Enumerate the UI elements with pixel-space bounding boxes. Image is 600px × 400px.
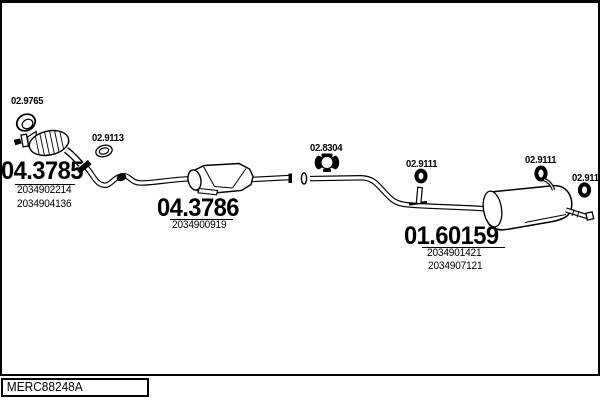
exhaust-system-diagram: 02.9765 02.9113 02.8304 02.9111 02.9111 …: [0, 0, 600, 400]
sleeve-joint: [301, 173, 306, 184]
frame-border-left: [0, 0, 2, 376]
label-hanger-1: 02.9111: [406, 159, 437, 169]
hanger-ring-icon-2: [536, 168, 545, 180]
rear-pipe: [310, 178, 484, 209]
tailpipe-drawing: [566, 210, 594, 221]
oe-number: 2034900919: [172, 220, 226, 231]
label-hanger-3: 02.9111: [572, 173, 600, 183]
hanger-ring-icon-1: [417, 171, 426, 182]
part-number-centre-catalyst: 04.3786: [157, 197, 239, 219]
label-hanger-2: 02.9111: [525, 155, 556, 165]
centre-outlet-pipe: [252, 174, 292, 184]
frame-border-top: [0, 0, 600, 3]
part-number-front-catalyst: 04.3785: [1, 160, 83, 182]
oe-number: 2034902214: [17, 185, 71, 196]
centre-catalyst-drawing: [186, 164, 253, 195]
pipe-end-flare: [289, 174, 293, 184]
label-seal-ring: 02.9113: [92, 133, 124, 143]
diagram-artwork: [0, 0, 600, 400]
clamp-icon: [315, 154, 340, 173]
hanger-ring-icon-3: [580, 184, 589, 195]
inlet-stub: [14, 138, 22, 145]
diagram-code-box: MERC88248A: [1, 378, 149, 398]
label-clamp: 02.8304: [310, 143, 342, 153]
diagram-code: MERC88248A: [3, 380, 140, 396]
footer-divider: [0, 374, 600, 376]
gasket-icon: [14, 111, 38, 134]
tailpipe-tip: [586, 212, 594, 220]
oe-number: 2034904136: [17, 199, 71, 210]
front-pipe: [86, 167, 191, 185]
oe-number: 2034901421: [427, 248, 481, 259]
seal-ring-icon: [95, 143, 114, 158]
oe-number: 2034907121: [428, 261, 482, 272]
part-number-rear-silencer: 01.60159: [404, 225, 499, 247]
hanger-bracket: [409, 187, 427, 204]
label-gasket: 02.9765: [11, 96, 43, 106]
